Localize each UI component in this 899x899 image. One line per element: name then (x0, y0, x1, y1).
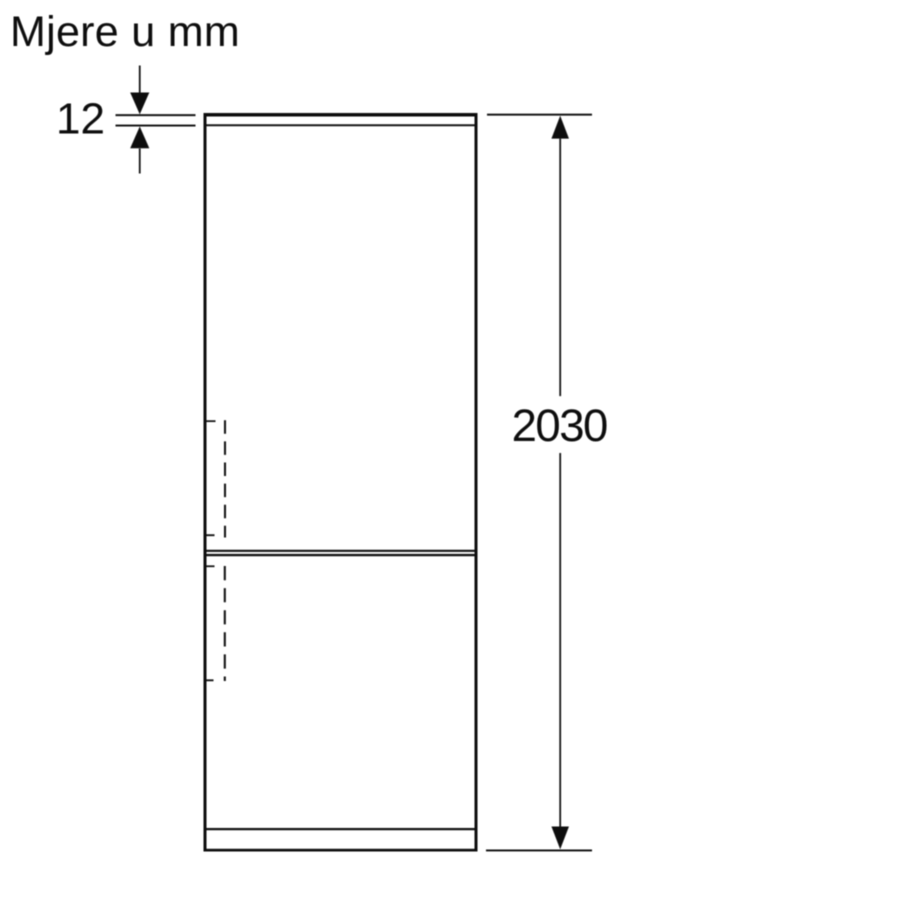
svg-text:2030: 2030 (512, 400, 607, 451)
svg-text:12: 12 (56, 95, 105, 144)
svg-text:Mjere u mm: Mjere u mm (10, 8, 240, 56)
